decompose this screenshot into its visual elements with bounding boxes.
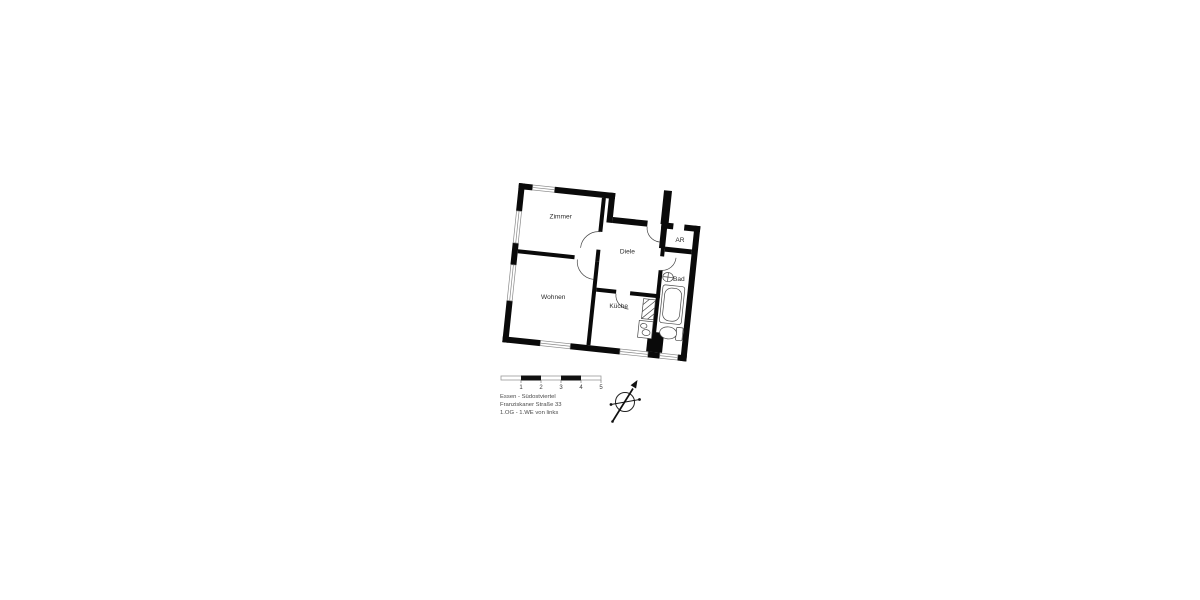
wall-left-a: [516, 183, 525, 211]
stove: [642, 299, 656, 320]
window-kueche-bottom: [620, 349, 648, 357]
door-arc-wohnen: [575, 260, 595, 280]
door-arc-entrance: [646, 227, 661, 242]
room-label-bad: Bad: [673, 276, 685, 283]
wall-ar-left: [659, 222, 668, 248]
wall-zimmer-diele-low: [595, 249, 600, 261]
title-block: Essen - Südostviertel Franziskaner Straß…: [500, 394, 562, 416]
compass-tail-dot: [611, 420, 614, 423]
wall-wing-top-a: [612, 217, 647, 227]
door-arc-zimmer: [581, 230, 601, 250]
north-arrow-icon: [610, 380, 641, 423]
scale-bar-labels: 1 2 3 4 5: [519, 385, 603, 391]
window-wohnen-left: [507, 265, 516, 301]
scale-tick-5: 5: [599, 385, 603, 391]
scale-bar: 1 2 3 4 5: [501, 376, 603, 392]
door-arc-bad: [661, 256, 676, 271]
scale-bar-segment-3-4: [561, 376, 581, 381]
floor-plan-page: Zimmer Wohnen Diele Küche AR Bad 1 2 3 4…: [0, 0, 1200, 600]
wall-kueche-top-b: [630, 291, 660, 298]
window-bad-bottom: [659, 353, 677, 360]
title-line-3: 1.OG - 1.WE von links: [500, 410, 558, 416]
wall-top-right: [554, 187, 615, 199]
wall-left-b: [510, 243, 518, 266]
wall-bottom-c: [647, 351, 660, 358]
wall-left-c: [502, 300, 512, 342]
room-label-zimmer: Zimmer: [550, 214, 573, 221]
room-label-kueche: Küche: [609, 303, 628, 310]
wall-ar-bottom: [665, 247, 692, 255]
scale-bar-track: [501, 376, 601, 380]
chimney-stub: [660, 190, 672, 225]
scale-tick-4: 4: [579, 385, 583, 391]
title-line-2: Franziskaner Straße 33: [500, 402, 562, 408]
scale-bar-segment-1-2: [521, 376, 541, 381]
scale-tick-1: 1: [519, 385, 523, 391]
compass-cross-dot-left: [610, 403, 613, 406]
wall-wohnen-kueche: [586, 261, 599, 345]
room-label-ar: AR: [675, 237, 684, 244]
wall-kueche-top-a: [596, 288, 616, 294]
compass-arrowhead: [631, 380, 638, 389]
window-wohnen-bottom: [540, 341, 570, 349]
scale-tick-3: 3: [559, 385, 563, 391]
scale-tick-2: 2: [539, 385, 543, 391]
floor-plan: Zimmer Wohnen Diele Küche AR Bad: [502, 175, 704, 361]
wall-zimmer-diele: [598, 198, 606, 232]
window-zimmer-left: [513, 211, 521, 243]
floor-plan-drawing: Zimmer Wohnen Diele Küche AR Bad 1 2 3 4…: [0, 0, 1200, 600]
room-label-wohnen: Wohnen: [541, 294, 566, 301]
compass-cross-dot-right: [638, 398, 641, 401]
wall-bottom-d: [677, 355, 687, 362]
wall-zimmer-wohnen: [518, 249, 575, 259]
title-line-1: Essen - Südostviertel: [500, 394, 556, 400]
window-zimmer-top: [532, 185, 554, 192]
bathroom-sink: [662, 272, 673, 282]
kitchen-sink: [638, 320, 654, 338]
bathtub: [659, 285, 685, 325]
room-label-diele: Diele: [620, 249, 635, 256]
wall-bottom-b: [570, 343, 620, 354]
